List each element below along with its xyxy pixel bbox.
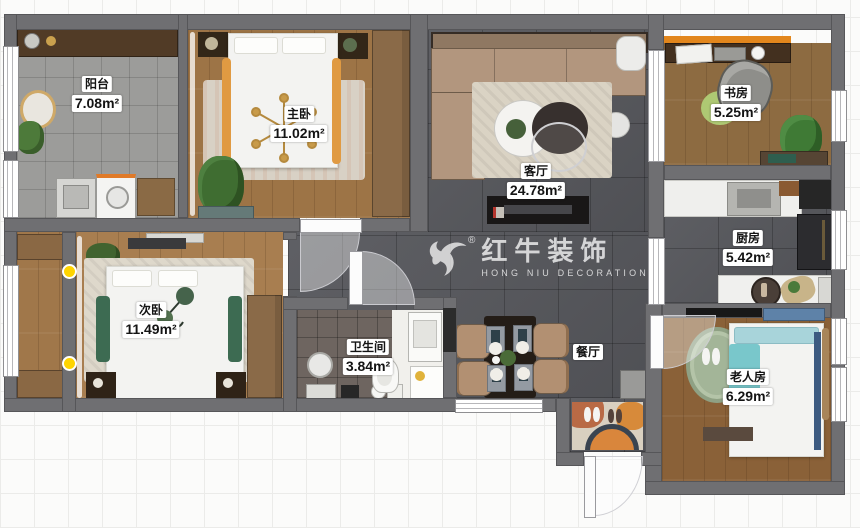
bath-shelf [410, 366, 445, 399]
plate-3 [490, 368, 503, 381]
second-curtain [77, 236, 82, 398]
room-area-bathroom: 3.84m² [343, 358, 393, 375]
dining-centerpiece [500, 350, 516, 366]
room-area-master: 11.02m² [270, 125, 327, 142]
dining-bowl [492, 356, 500, 364]
plate-4 [517, 367, 530, 380]
dining-chair-rb [533, 359, 569, 394]
room-area-living: 24.78m² [507, 182, 565, 199]
marker-dot-lower [62, 356, 77, 371]
registered-mark: ® [468, 236, 475, 246]
dining-chair-rt [533, 323, 569, 358]
wall-balcony-master [178, 14, 188, 218]
balcony-window-2 [3, 160, 19, 218]
elderly-pillows [734, 327, 819, 344]
elderly-curtain [822, 328, 829, 420]
second-pillow-right [158, 270, 198, 287]
room-name-dining: 餐厅 [573, 344, 603, 360]
room-name-kitchen: 厨房 [733, 230, 763, 246]
elderly-blanket-edge [814, 332, 821, 450]
bath-stool-dark [341, 385, 359, 398]
tv-screen [504, 205, 572, 214]
room-area-elderly: 6.29m² [723, 388, 773, 405]
room-name-living: 客厅 [521, 163, 551, 179]
watermark-brand: 红牛装饰 [481, 236, 649, 266]
master-pillow-right [282, 37, 326, 54]
elderly-slipper-left [702, 348, 710, 365]
closet-window [3, 265, 19, 377]
second-nightstand-deco-left [93, 378, 103, 388]
elderly-dresser [763, 308, 825, 321]
room-label-second: 次卧 11.49m² [122, 302, 179, 338]
second-wardrobe [247, 295, 282, 398]
wall-second-right-bottom [283, 296, 297, 412]
room-name-master: 主卧 [284, 106, 314, 122]
bull-logo-icon [424, 236, 472, 282]
marker-dot-upper [62, 264, 77, 279]
wall-c-mid [648, 160, 664, 238]
coffee-table-plant [506, 119, 526, 139]
master-curtain [190, 32, 195, 216]
floor-plan: 阳台 7.08m² 主卧 11.02m² 客厅 24.78m² 书房 5.25m… [0, 0, 860, 528]
room-label-bathroom: 卫生间 3.84m² [343, 339, 393, 375]
master-pillow-left [234, 37, 278, 54]
room-area-second: 11.49m² [122, 321, 179, 338]
balcony-cabinet-bowl [24, 33, 40, 49]
elderly-window-1 [831, 318, 847, 365]
dining-low-window [455, 399, 543, 413]
watermark-subtitle: HONG NIU DECORATION [481, 268, 649, 278]
room-label-elderly: 老人房 6.29m² [723, 369, 773, 405]
bath-wall-cabinet [443, 308, 456, 352]
kitchen-sliding-door [648, 238, 665, 305]
room-label-balcony: 阳台 7.08m² [72, 76, 122, 112]
room-label-dining: 餐厅 [573, 344, 603, 360]
room-label-kitchen: 厨房 5.42m² [723, 230, 773, 266]
study-cup [751, 46, 765, 60]
wall-a-left [4, 218, 300, 232]
dining-chair-lt [454, 324, 490, 359]
entrance-door-arc [594, 456, 643, 516]
room-area-kitchen: 5.42m² [723, 249, 773, 266]
entrance-door-leaf [584, 456, 596, 518]
entry-mat [572, 402, 643, 450]
entry-shoe-white-l [584, 407, 591, 422]
entry-shoe-white-r [593, 407, 600, 422]
master-bed-trim-right [332, 58, 341, 164]
washing-machine-door [106, 186, 129, 209]
second-runner-right [228, 296, 242, 362]
room-name-balcony: 阳台 [82, 76, 112, 92]
fridge-handle [822, 220, 825, 260]
elderly-door-leaf [650, 315, 664, 369]
wall-entry-bottom-right [641, 452, 662, 466]
entry-shoe-dark-l [608, 409, 614, 423]
wall-master-living [410, 14, 428, 232]
study-shelf-books [768, 154, 796, 163]
second-desk [128, 238, 186, 249]
wall-study-kitchen [664, 165, 831, 180]
wall-bath-top-left [283, 297, 348, 310]
master-nightstand-lamp-left [205, 37, 218, 50]
room-area-balcony: 7.08m² [72, 95, 122, 112]
shower-head [307, 352, 333, 378]
study-papers [675, 44, 712, 64]
vanity-sink [413, 320, 437, 348]
wall-closet-inner [62, 232, 76, 412]
wall-second-right-top [283, 232, 297, 240]
room-label-living: 客厅 24.78m² [507, 163, 565, 199]
master-door-leaf [300, 219, 362, 233]
pouf-square [616, 36, 646, 71]
balcony-window-1 [3, 46, 19, 152]
kitchen-veggies [788, 281, 800, 293]
room-area-study: 5.25m² [711, 104, 761, 121]
elderly-slipper-right [712, 348, 720, 365]
tv-deco-red [493, 207, 504, 218]
cutting-board-wall [779, 181, 799, 196]
wall-c-top [648, 14, 664, 50]
balcony-cabinet [17, 29, 178, 57]
bath-shelf-items [415, 371, 425, 381]
kitchen-bottle [761, 283, 767, 297]
wall-bottom-elderly [645, 481, 845, 495]
second-runner-left [96, 296, 110, 362]
elderly-foot-mat [703, 427, 753, 441]
room-name-second: 次卧 [136, 302, 166, 318]
watermark: ® 红牛装饰 HONG NIU DECORATION [424, 236, 649, 282]
bathroom-door-leaf [349, 251, 363, 305]
room-name-elderly: 老人房 [727, 369, 769, 385]
room-name-bathroom: 卫生间 [347, 339, 389, 355]
kitchen-stove-dark [799, 180, 831, 209]
study-window [831, 90, 847, 142]
elderly-window-2 [831, 367, 847, 422]
plate-2 [516, 341, 529, 354]
master-wardrobe [372, 30, 410, 217]
master-nightstand-lamp-right [343, 38, 357, 52]
second-nightstand-deco-right [223, 378, 233, 388]
wall-a-right [360, 218, 410, 232]
entry-shoe-dark-r [616, 409, 622, 423]
room-name-study: 书房 [721, 85, 751, 101]
kitchen-window [831, 210, 847, 270]
laundry-cabinet [137, 178, 175, 216]
room-label-study: 书房 5.25m² [711, 85, 761, 121]
master-bed-trim-left [222, 58, 231, 164]
wall-entry-bottom-left [556, 452, 584, 466]
room-label-master: 主卧 11.02m² [270, 106, 327, 142]
fridge [797, 214, 833, 270]
second-pillow-left [112, 270, 152, 287]
laundry-sink-basin [63, 185, 89, 209]
study-sliding-door [648, 50, 665, 162]
shower-caddy [306, 384, 336, 399]
balcony-cabinet-deco [46, 36, 56, 46]
balcony-plant [16, 121, 44, 154]
study-curtain-rod [663, 36, 791, 43]
closet-cabinet-top [17, 234, 65, 260]
cooktop [737, 189, 771, 208]
